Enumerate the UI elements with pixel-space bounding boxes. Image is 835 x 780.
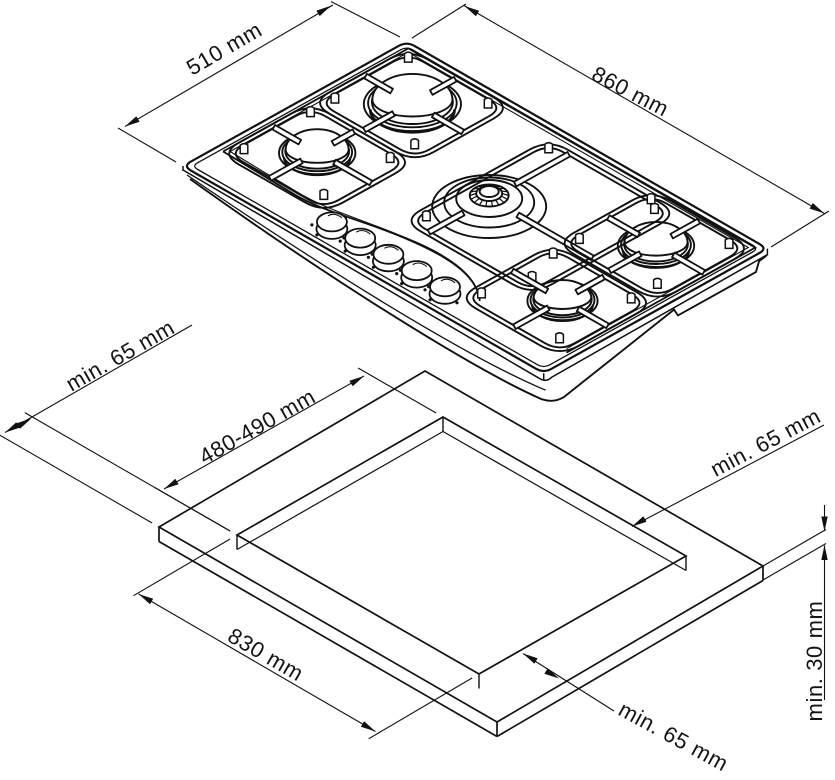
svg-text:min. 30 mm: min. 30 mm [802,601,827,722]
